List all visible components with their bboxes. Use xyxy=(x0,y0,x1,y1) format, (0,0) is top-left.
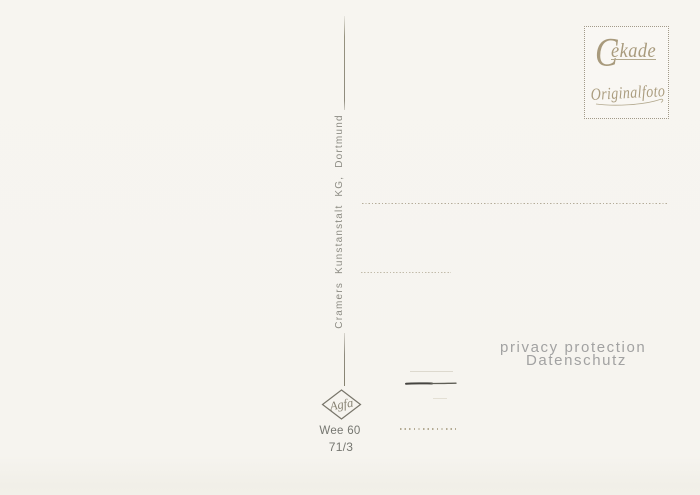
svg-text:ekade: ekade xyxy=(611,40,656,62)
svg-text:Agfa: Agfa xyxy=(328,396,355,414)
